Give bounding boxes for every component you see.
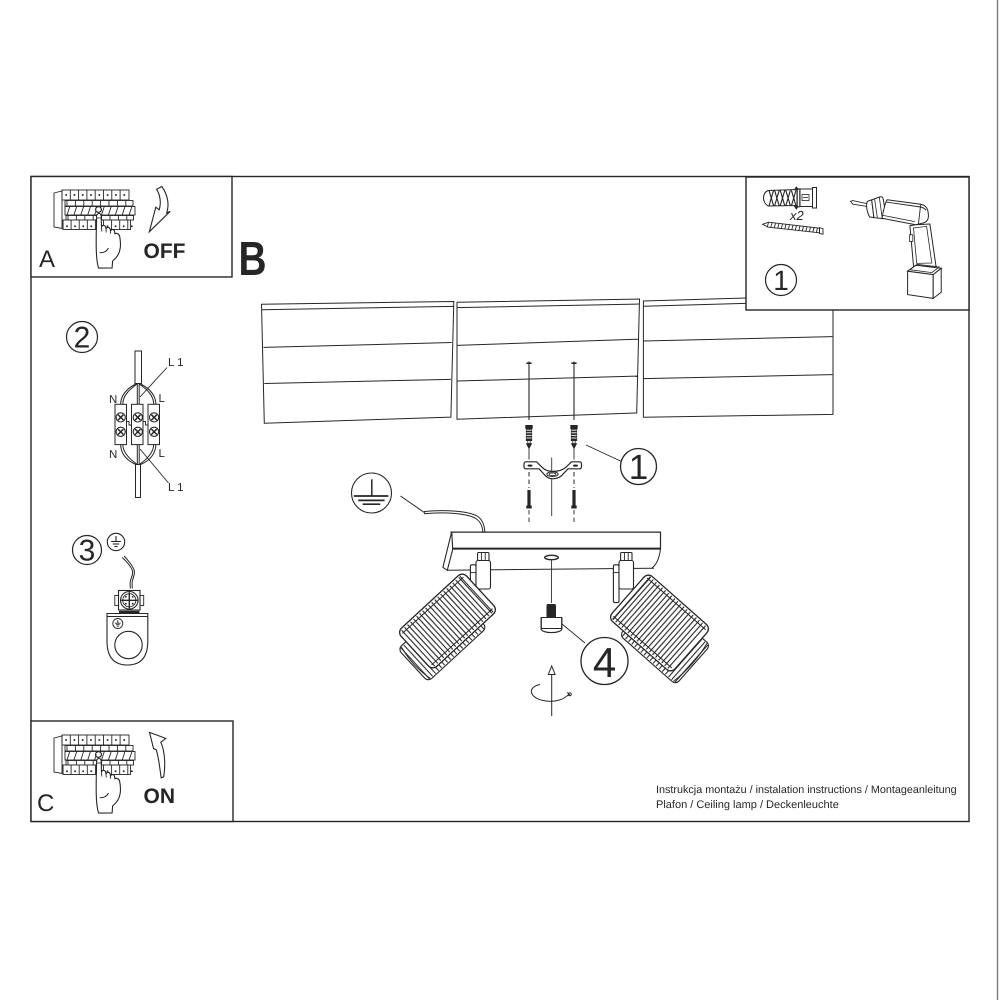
svg-text:Plafon / Ceiling lamp / Decken: Plafon / Ceiling lamp / Deckenleuchte [656, 799, 839, 811]
svg-text:1: 1 [773, 265, 789, 296]
svg-text:N: N [109, 449, 117, 461]
svg-text:A: A [39, 246, 55, 273]
svg-text:L 1: L 1 [168, 482, 184, 494]
svg-text:OFF: OFF [144, 240, 186, 263]
svg-text:L 1: L 1 [168, 357, 184, 369]
svg-text:ON: ON [144, 785, 176, 808]
svg-text:2: 2 [74, 322, 91, 355]
svg-text:Instrukcja montażu / instalati: Instrukcja montażu / instalation instruc… [656, 784, 957, 796]
svg-text:L: L [159, 448, 166, 460]
svg-text:1: 1 [629, 448, 648, 487]
svg-text:3: 3 [79, 535, 96, 568]
svg-text:4: 4 [593, 639, 616, 686]
svg-text:B: B [239, 233, 267, 286]
svg-text:C: C [37, 790, 54, 817]
svg-text:x2: x2 [789, 208, 805, 223]
svg-text:L: L [159, 393, 166, 405]
